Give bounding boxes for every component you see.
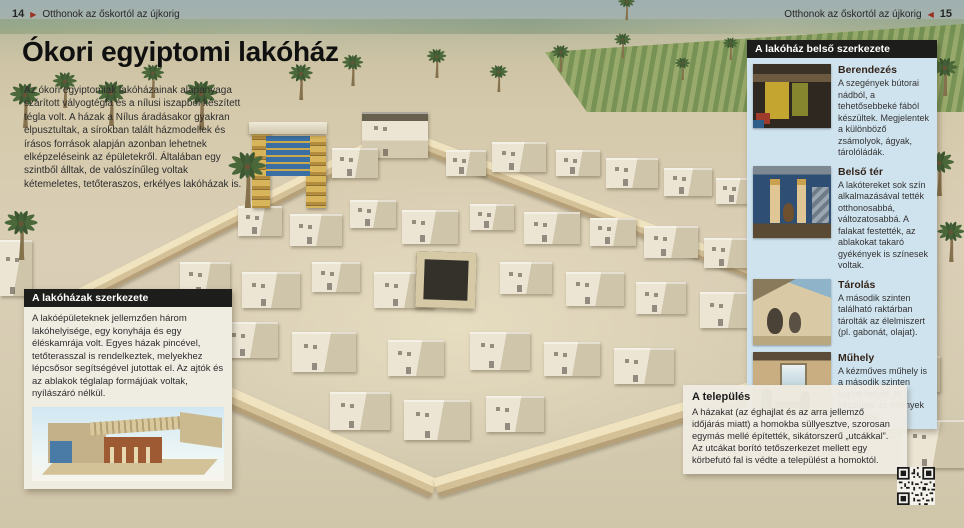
house [330,392,390,430]
nile-shore [0,19,964,34]
settlement-box-title: A település [692,391,898,403]
house [544,342,600,376]
qr-code [897,467,935,505]
house [0,240,32,296]
painted-interior-photo [753,166,831,238]
structure-box: A lakóházak szerkezete A lakóépületeknek… [24,289,232,489]
house [312,262,360,292]
house [590,218,636,246]
entry-heading: Berendezés [838,64,931,76]
house [486,396,544,432]
cutaway-house-illustration [32,407,224,481]
structure-box-title: A lakóházak szerkezete [24,289,232,307]
entry-text: A szegények bútorai nádból, a tehetősebb… [838,78,931,159]
house [636,282,686,314]
house [292,332,356,372]
page-title: Ókori egyiptomi lakóház [22,36,339,68]
house [332,148,378,178]
running-title: Otthonok az őskortól az újkorig [784,9,921,20]
house [470,204,514,230]
decorated-gate [252,112,326,208]
entry-text: A második szinten található raktárban tá… [838,293,931,339]
house [404,400,470,440]
house [388,340,444,376]
entry-text: A lakótereket sok szín alkalmazásával te… [838,180,931,272]
house [238,206,282,236]
intro-paragraph: Az ókori egyiptomiak lakóházainak alapan… [24,84,242,191]
house [606,158,658,188]
house [290,214,342,246]
settlement-box-text: A házakat (az éghajlat és az arra jellem… [692,406,898,466]
house [492,142,546,172]
house [644,226,698,258]
house [556,150,600,176]
arrow-right-icon: ▶ [30,10,36,19]
sidebar-entry-tarolas: Tárolás A második szinten található rakt… [753,279,931,345]
central-well [415,251,477,309]
house [524,212,580,244]
settlement-box: A település A házakat (az éghajlat és az… [683,385,907,474]
page-number: 14 [12,8,24,20]
page-header-left: 14 ▶ Otthonok az őskortól az újkorig [12,8,180,20]
page-number: 15 [940,8,952,20]
interior-sidebar: A lakóház belső szerkezete Berendezés A … [747,40,937,429]
entry-heading: Tárolás [838,279,931,291]
running-title: Otthonok az őskortól az újkorig [42,9,179,20]
house [242,272,300,308]
structure-box-text: A lakóépületeknek jellemzően három lakóh… [24,307,232,405]
sidebar-entry-belso-ter: Belső tér A lakótereket sok szín alkalma… [753,166,931,272]
interior-sidebar-title: A lakóház belső szerkezete [747,40,937,58]
page-header-right: Otthonok az őskortól az újkorig ◀ 15 [784,8,952,20]
house [350,200,396,228]
house [614,348,674,384]
house [402,210,458,244]
house [500,262,552,294]
furniture-interior-photo [753,64,831,128]
entry-heading: Belső tér [838,166,931,178]
house [664,168,712,196]
sidebar-entry-berendezes: Berendezés A szegények bútorai nádból, a… [753,64,931,159]
entry-heading: Műhely [838,352,931,364]
book-spread: 14 ▶ Otthonok az őskortól az újkorig Ott… [0,0,964,528]
rooftop-storage-photo [753,279,831,345]
house [446,150,486,176]
house [566,272,624,306]
house [704,238,750,268]
arrow-left-icon: ◀ [928,10,934,19]
house [470,332,530,370]
